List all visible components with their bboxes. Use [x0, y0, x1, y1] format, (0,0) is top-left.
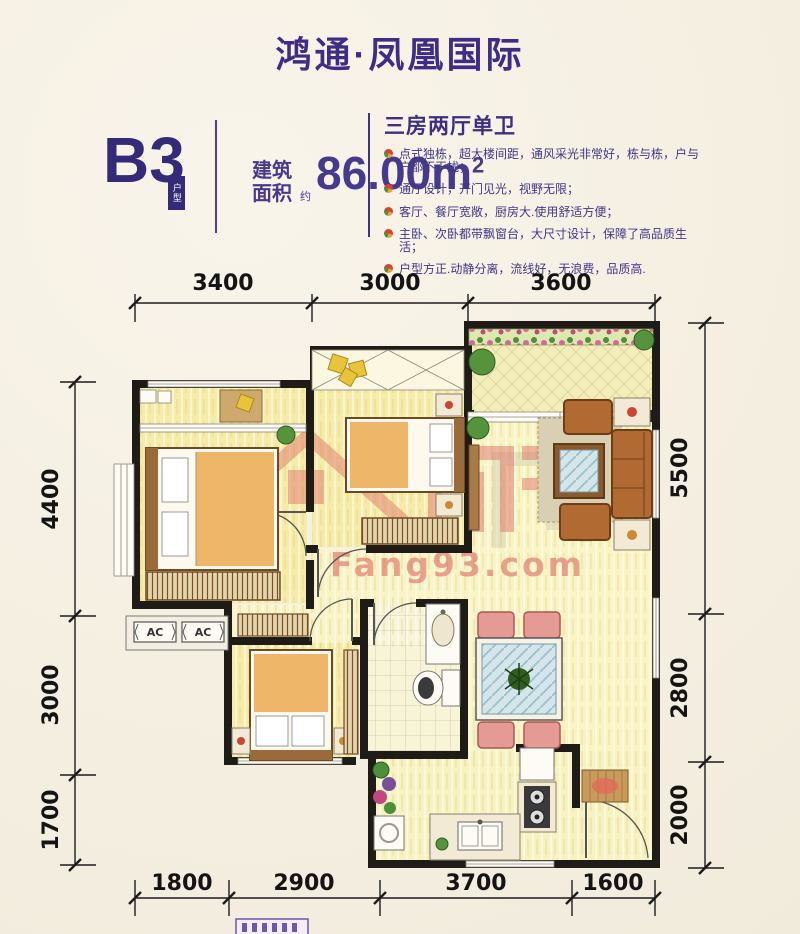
hall-cabinet — [238, 614, 308, 636]
dim-value: 3600 — [530, 271, 591, 296]
master-wardrobe — [146, 572, 280, 600]
dim-value: 2900 — [273, 871, 334, 896]
shoe-cabinet — [140, 390, 156, 403]
fridge — [520, 748, 554, 780]
scale-bar-fragment — [236, 919, 308, 934]
dim-value: 5500 — [668, 437, 693, 498]
plant-icon — [467, 417, 489, 439]
dim-value: 2000 — [668, 784, 693, 845]
dim-value: 3700 — [445, 871, 506, 896]
plant-icon — [436, 838, 448, 850]
ac-label: AC — [195, 626, 212, 639]
dim-value: 1600 — [582, 871, 643, 896]
dim-value: 3000 — [359, 271, 420, 296]
tv-cabinet — [469, 445, 479, 530]
dim-value: 3400 — [192, 271, 253, 296]
toilet — [413, 670, 460, 706]
dimension-bottom: 1800 2900 3700 1600 — [129, 871, 661, 916]
dimension-top: 3400 3000 3600 — [129, 271, 661, 322]
plant-icon — [277, 426, 295, 444]
dim-value: 2800 — [668, 657, 693, 718]
second-wardrobe — [362, 518, 458, 544]
ac-platform: AC AC — [126, 616, 228, 650]
entry — [582, 770, 628, 802]
bay-window — [312, 350, 464, 390]
dim-value: 1800 — [151, 871, 212, 896]
dimension-left: 4400 3000 1700 — [39, 376, 96, 871]
dim-value: 1700 — [39, 789, 64, 850]
washer — [374, 816, 404, 850]
dim-value: 3000 — [39, 664, 64, 725]
dimension-right: 5500 2800 2000 — [668, 317, 724, 874]
third-wardrobe — [344, 650, 358, 754]
ac-label: AC — [147, 626, 164, 639]
flyer-page: 鸿通·凤凰国际 B3 户型 建筑 面积 约 86.00m2 三房两厅单卫 点式独… — [0, 0, 800, 934]
dim-value: 4400 — [39, 468, 64, 529]
floor-plan: Fang93.com — [0, 0, 800, 934]
